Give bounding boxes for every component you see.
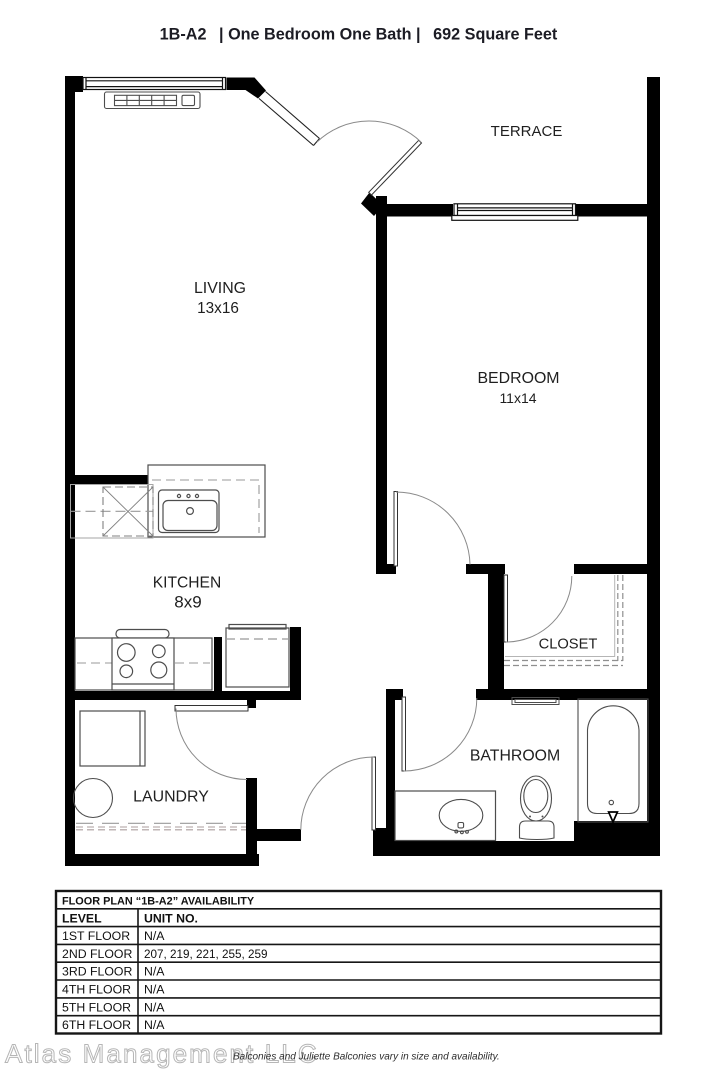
svg-text:LAUNDRY: LAUNDRY: [133, 789, 209, 806]
svg-text:LIVING: LIVING: [194, 280, 246, 297]
svg-text:5TH FLOOR: 5TH FLOOR: [62, 1000, 131, 1014]
svg-text:FLOOR PLAN “1B-A2” AVAILABILIT: FLOOR PLAN “1B-A2” AVAILABILITY: [62, 896, 255, 908]
svg-text:CLOSET: CLOSET: [539, 637, 598, 653]
svg-text:N/A: N/A: [144, 983, 165, 997]
svg-text:11x14: 11x14: [499, 390, 536, 406]
svg-text:UNIT NO.: UNIT NO.: [144, 911, 198, 925]
svg-text:TERRACE: TERRACE: [491, 123, 563, 140]
svg-text:207, 219, 221, 255, 259: 207, 219, 221, 255, 259: [144, 948, 267, 961]
svg-text:N/A: N/A: [144, 965, 165, 979]
svg-text:KITCHEN: KITCHEN: [153, 575, 221, 592]
svg-text:3RD FLOOR: 3RD FLOOR: [62, 965, 132, 979]
svg-text:1B-A2 | One Bedroom One Bath: 1B-A2 | One Bedroom One Bath | 692 Squar…: [160, 26, 558, 44]
svg-text:1ST FLOOR: 1ST FLOOR: [62, 929, 130, 943]
svg-text:6TH FLOOR: 6TH FLOOR: [62, 1018, 131, 1032]
svg-text:N/A: N/A: [144, 1018, 165, 1032]
svg-text:N/A: N/A: [144, 1000, 165, 1014]
svg-text:N/A: N/A: [144, 929, 165, 943]
svg-text:2ND FLOOR: 2ND FLOOR: [62, 947, 132, 961]
svg-text:BEDROOM: BEDROOM: [477, 370, 559, 387]
svg-text:8x9: 8x9: [174, 593, 201, 612]
svg-text:4TH FLOOR: 4TH FLOOR: [62, 983, 131, 997]
svg-text:13x16: 13x16: [197, 300, 239, 317]
svg-text:Balconies and Juliette Balconi: Balconies and Juliette Balconies vary in…: [233, 1052, 500, 1063]
svg-text:BATHROOM: BATHROOM: [470, 748, 560, 765]
svg-text:LEVEL: LEVEL: [62, 911, 102, 925]
